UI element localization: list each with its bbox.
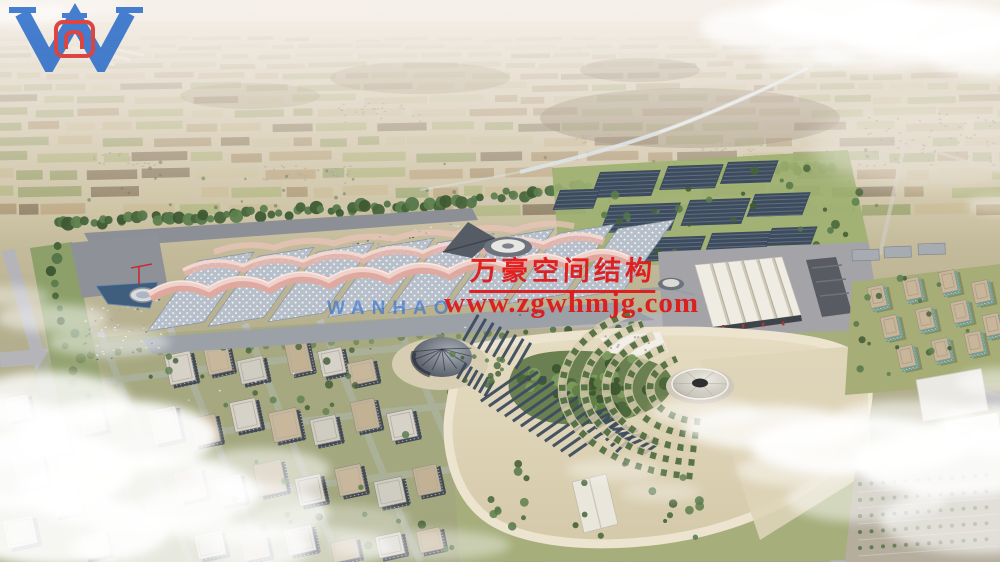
cloud	[620, 482, 700, 502]
solar-panel-block	[720, 160, 779, 184]
city-tree	[149, 375, 153, 379]
treeline-tree	[491, 192, 498, 199]
solar-farm-tree	[852, 198, 860, 206]
park-tree	[494, 507, 502, 515]
treeline-tree	[137, 210, 148, 221]
cloud	[760, 46, 852, 70]
solar-farm-tree	[706, 196, 713, 203]
treeline-tree	[359, 200, 371, 212]
solar-farm-tree	[652, 208, 657, 213]
park-tree	[514, 467, 523, 476]
park-tree	[598, 533, 604, 539]
treeline-tree	[439, 195, 452, 208]
district-tree	[897, 275, 904, 282]
building-roof	[310, 415, 341, 446]
district-tree	[926, 311, 932, 317]
district-tree	[937, 282, 942, 287]
solar-farm-tree	[786, 182, 794, 190]
city-tree	[345, 373, 351, 379]
solar-farm-tree	[741, 192, 745, 196]
treeline-tree	[285, 211, 294, 220]
city-tree	[166, 353, 172, 359]
street-tree	[550, 326, 556, 332]
building-roof	[237, 356, 267, 385]
cloud	[736, 454, 856, 486]
logo-serif-left	[9, 7, 36, 13]
district-tree	[928, 348, 935, 355]
district-tree	[853, 321, 859, 327]
park-tree	[523, 475, 529, 481]
street-tree	[523, 330, 528, 335]
park-tree	[495, 371, 501, 377]
city-tree	[325, 380, 333, 388]
building	[310, 414, 346, 450]
city-tree	[323, 357, 331, 365]
park-tree	[488, 496, 495, 503]
city-tree	[349, 347, 355, 353]
treeline-tree	[260, 205, 268, 213]
city-tree	[322, 408, 329, 415]
round-pavilion-roof	[663, 279, 680, 287]
park-tree	[667, 512, 673, 518]
treeline-tree	[80, 216, 89, 225]
city-tree	[270, 397, 277, 404]
solar-farm-tree	[855, 188, 863, 196]
district-tree	[918, 299, 922, 303]
city-tree	[165, 367, 173, 375]
solar-farm-tree	[731, 217, 737, 223]
gravel-speckle	[634, 336, 636, 338]
treeline-tree	[207, 215, 214, 222]
city-tree	[330, 403, 335, 408]
district-tree	[895, 345, 899, 349]
district-tree	[867, 342, 871, 346]
solar-panel-block	[765, 226, 817, 246]
park-tree	[463, 378, 468, 383]
park-tree	[485, 358, 489, 362]
solar-farm-tree	[750, 203, 757, 210]
solar-farm-tree	[827, 227, 834, 234]
treeline-tree	[255, 211, 266, 222]
disc-hall-center	[502, 243, 514, 248]
solar-farm-tree	[803, 164, 811, 172]
cloud	[566, 459, 662, 481]
park-tree	[685, 506, 694, 515]
park-tree	[693, 535, 698, 540]
solar-farm-tree	[823, 208, 827, 212]
median-tree	[51, 280, 59, 288]
district-tree	[947, 346, 951, 350]
parking-tree	[858, 546, 862, 550]
treeline-tree	[230, 209, 244, 223]
grove-tree	[614, 377, 620, 383]
park-tree	[488, 373, 494, 379]
treeline-tree	[296, 202, 306, 212]
city-tree	[295, 343, 302, 350]
district-tree	[887, 372, 891, 376]
logo-serif-mid	[62, 13, 87, 18]
district-tree	[864, 294, 871, 301]
warehouse-shed	[918, 243, 945, 255]
median-tree	[46, 266, 56, 276]
treeline-tree	[405, 197, 419, 211]
district-tree	[876, 293, 882, 299]
district-tree	[859, 336, 866, 343]
cloud	[330, 529, 510, 561]
median-tree	[54, 242, 62, 250]
park-tree	[582, 512, 588, 518]
gravel-speckle	[616, 346, 618, 348]
treeline-tree	[317, 206, 324, 213]
treeline-tree	[503, 188, 510, 195]
park-tree	[663, 519, 667, 523]
park-tree	[496, 357, 502, 363]
solar-farm-tree	[675, 205, 683, 213]
treeline-tree	[336, 209, 344, 217]
entrance-door	[742, 324, 744, 328]
treeline-tree	[223, 211, 230, 218]
cloud	[836, 400, 976, 432]
solar-panel-block	[590, 170, 660, 198]
treeline-tree	[197, 210, 208, 221]
park-tree	[449, 351, 455, 357]
treeline-tree	[246, 207, 254, 215]
solar-farm-tree	[780, 178, 784, 182]
park-tree	[461, 356, 465, 360]
park-tree	[680, 474, 687, 481]
city-tree	[246, 347, 252, 353]
city-tree	[418, 520, 426, 528]
parking-tree	[904, 543, 908, 547]
parking-tree	[858, 530, 862, 534]
park-tree	[514, 460, 522, 468]
gravel-speckle	[604, 335, 606, 337]
district-tree	[857, 365, 864, 372]
solar-farm-tree	[798, 226, 804, 232]
treeline-tree	[104, 216, 112, 224]
solar-farm-tree	[750, 166, 759, 175]
park-tree	[573, 522, 579, 528]
park-tree	[521, 515, 526, 520]
solar-panel-block	[659, 164, 724, 190]
city-tree	[200, 374, 204, 378]
treeline-tree	[267, 211, 275, 219]
solar-farm-tree	[687, 223, 691, 227]
city-tree	[297, 395, 305, 403]
wanhao-w-logo	[0, 0, 152, 72]
gravel-speckle	[617, 344, 619, 346]
treeline-tree	[509, 191, 518, 200]
watermark-website: www.zgwhmjg.com	[444, 287, 699, 320]
parking-tree	[870, 529, 874, 533]
solar-farm-tree	[685, 186, 691, 192]
solar-farm-tree	[623, 212, 630, 219]
city-tree	[223, 403, 228, 408]
median-tree	[52, 292, 59, 299]
city-tree	[305, 405, 310, 410]
district-tree	[966, 329, 970, 333]
park-tree	[695, 502, 704, 511]
entrance-door	[762, 323, 764, 327]
city-tree	[358, 485, 363, 490]
park-tree	[472, 354, 477, 359]
treeline-tree	[455, 196, 468, 209]
city-tree	[402, 431, 409, 438]
cloud	[190, 448, 330, 492]
city-tree	[252, 390, 258, 396]
parking-tree	[893, 544, 897, 548]
park-tree	[520, 498, 529, 507]
parking-tree	[870, 545, 874, 549]
solar-farm-tree	[601, 212, 608, 219]
cloud	[46, 328, 170, 356]
funnel-mouth	[692, 379, 708, 388]
entrance-door	[782, 321, 784, 325]
treeline-tree	[533, 188, 542, 197]
solar-farm-tree	[616, 218, 623, 225]
city-tree	[173, 358, 179, 364]
parking-tree	[881, 544, 885, 548]
aerial-rendering-exhibition-complex: WANHAO 万豪空间结构 www.zgwhmjg.com	[0, 0, 1000, 562]
warehouse-shed	[852, 249, 879, 261]
treeline-tree	[497, 194, 505, 202]
park-tree	[500, 367, 504, 371]
solar-farm-tree	[611, 191, 620, 200]
solar-panel-block	[553, 189, 601, 210]
park-tree	[581, 480, 587, 486]
solar-farm-tree	[843, 232, 848, 237]
treeline-tree	[476, 194, 484, 202]
solar-panel-block	[680, 198, 750, 226]
warehouse-shed	[884, 246, 911, 258]
park-tree	[494, 362, 501, 369]
park-tree	[508, 522, 516, 530]
treeline-tree	[384, 201, 391, 208]
city-tree	[352, 382, 359, 389]
cloud	[0, 304, 108, 332]
treeline-tree	[275, 209, 282, 216]
median-tree	[52, 253, 63, 264]
building-roof	[318, 347, 347, 377]
gravel-speckle	[644, 349, 646, 351]
logo-serif-right	[116, 7, 143, 13]
